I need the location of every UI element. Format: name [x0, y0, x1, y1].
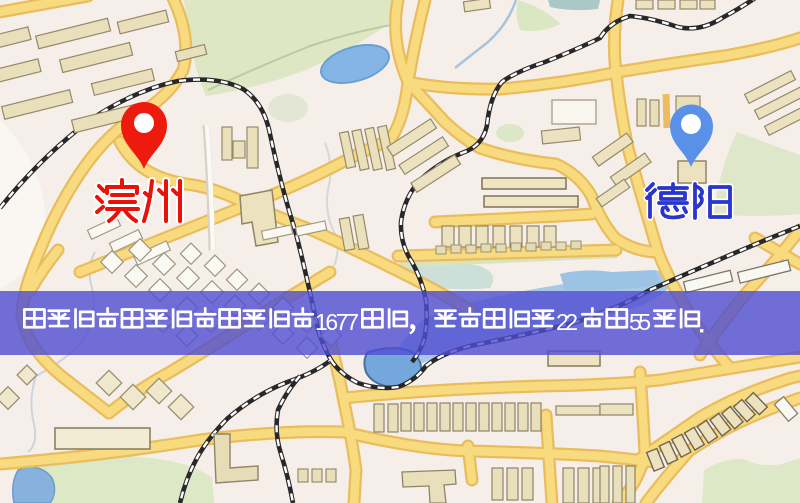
- svg-text:1677: 1677: [315, 309, 359, 335]
- svg-text:22: 22: [556, 309, 578, 335]
- svg-text:55: 55: [629, 309, 651, 335]
